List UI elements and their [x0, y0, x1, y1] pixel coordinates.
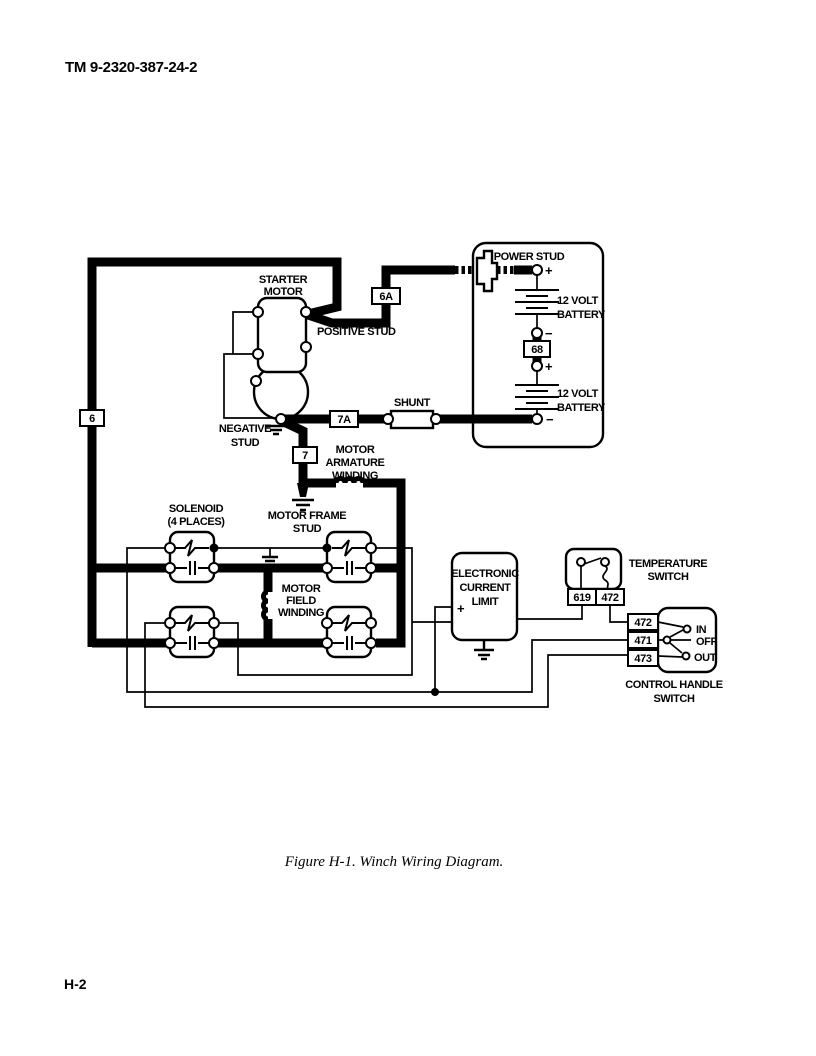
page-number: H-2	[64, 976, 87, 992]
out-label: OUT	[694, 652, 717, 664]
shunt-label: SHUNT	[394, 397, 431, 409]
wire-6a-label: 6A	[379, 291, 393, 303]
battery-bottom-label: 12 VOLT	[557, 388, 599, 400]
svg-text:LIMIT: LIMIT	[472, 596, 499, 608]
winch-wiring-diagram: 6 6A 7 7A 68 619 472 472 471 473	[0, 0, 816, 1056]
svg-text:BATTERY: BATTERY	[557, 309, 606, 321]
svg-text:SWITCH: SWITCH	[654, 693, 695, 705]
wire-7-label: 7	[302, 450, 308, 462]
off-label: OFF	[696, 636, 717, 648]
battery-plus-sign: +	[545, 263, 553, 278]
motor-field-label: MOTOR	[282, 583, 321, 595]
wire-471-label: 471	[634, 635, 651, 647]
svg-text:(4 PLACES): (4 PLACES)	[167, 516, 225, 528]
control-handle-label: CONTROL HANDLE	[625, 679, 723, 691]
svg-text:MOTOR: MOTOR	[264, 286, 303, 298]
wire-6-label: 6	[89, 413, 95, 425]
temperature-switch-box	[566, 549, 621, 589]
shunt-body	[391, 411, 433, 428]
svg-text:+: +	[545, 359, 553, 374]
negative-stud-terminal	[276, 414, 286, 424]
wire-619-label: 619	[573, 592, 590, 604]
motor-frame-stud-label: MOTOR FRAME	[268, 510, 347, 522]
svg-text:ARMATURE: ARMATURE	[326, 457, 385, 469]
battery-top-label: 12 VOLT	[557, 295, 599, 307]
starter-motor-label: STARTER	[259, 274, 308, 286]
svg-text:STUD: STUD	[231, 437, 260, 449]
positive-stud-terminal	[301, 307, 311, 317]
power-stud-label: POWER STUD	[494, 251, 565, 263]
negative-stud-label: NEGATIVE	[219, 423, 271, 435]
solenoid-label: SOLENOID	[169, 503, 224, 515]
svg-text:WINDING: WINDING	[332, 470, 378, 482]
manual-page: 6 6A 7 7A 68 619 472 472 471 473	[0, 0, 816, 1056]
motor-armature-label: MOTOR	[336, 444, 375, 456]
temperature-switch-label: TEMPERATURE	[629, 558, 708, 570]
svg-text:SWITCH: SWITCH	[648, 571, 689, 583]
tm-number-header: TM 9-2320-387-24-2	[65, 59, 197, 76]
svg-text:CURRENT: CURRENT	[460, 582, 512, 594]
wire-7a-label: 7A	[337, 414, 351, 426]
battery-minus-sign: −	[545, 326, 553, 341]
svg-text:FIELD: FIELD	[286, 595, 316, 607]
wire-473-label: 473	[634, 653, 651, 665]
wire-68-label: 68	[531, 344, 543, 356]
ecl-plus-sign: +	[457, 601, 465, 616]
svg-text:WINDING: WINDING	[278, 607, 324, 619]
motor-frame-stud	[297, 483, 309, 497]
svg-text:BATTERY: BATTERY	[557, 402, 606, 414]
svg-text:−: −	[546, 412, 554, 427]
in-label: IN	[696, 624, 707, 636]
figure-caption: Figure H-1. Winch Wiring Diagram.	[284, 854, 504, 870]
temp-wire-472-label: 472	[601, 592, 618, 604]
positive-stud-label: POSITIVE STUD	[317, 326, 396, 338]
svg-text:STUD: STUD	[293, 523, 322, 535]
ecl-label: ELECTRONIC	[451, 568, 519, 580]
wire-472-label: 472	[634, 617, 651, 629]
